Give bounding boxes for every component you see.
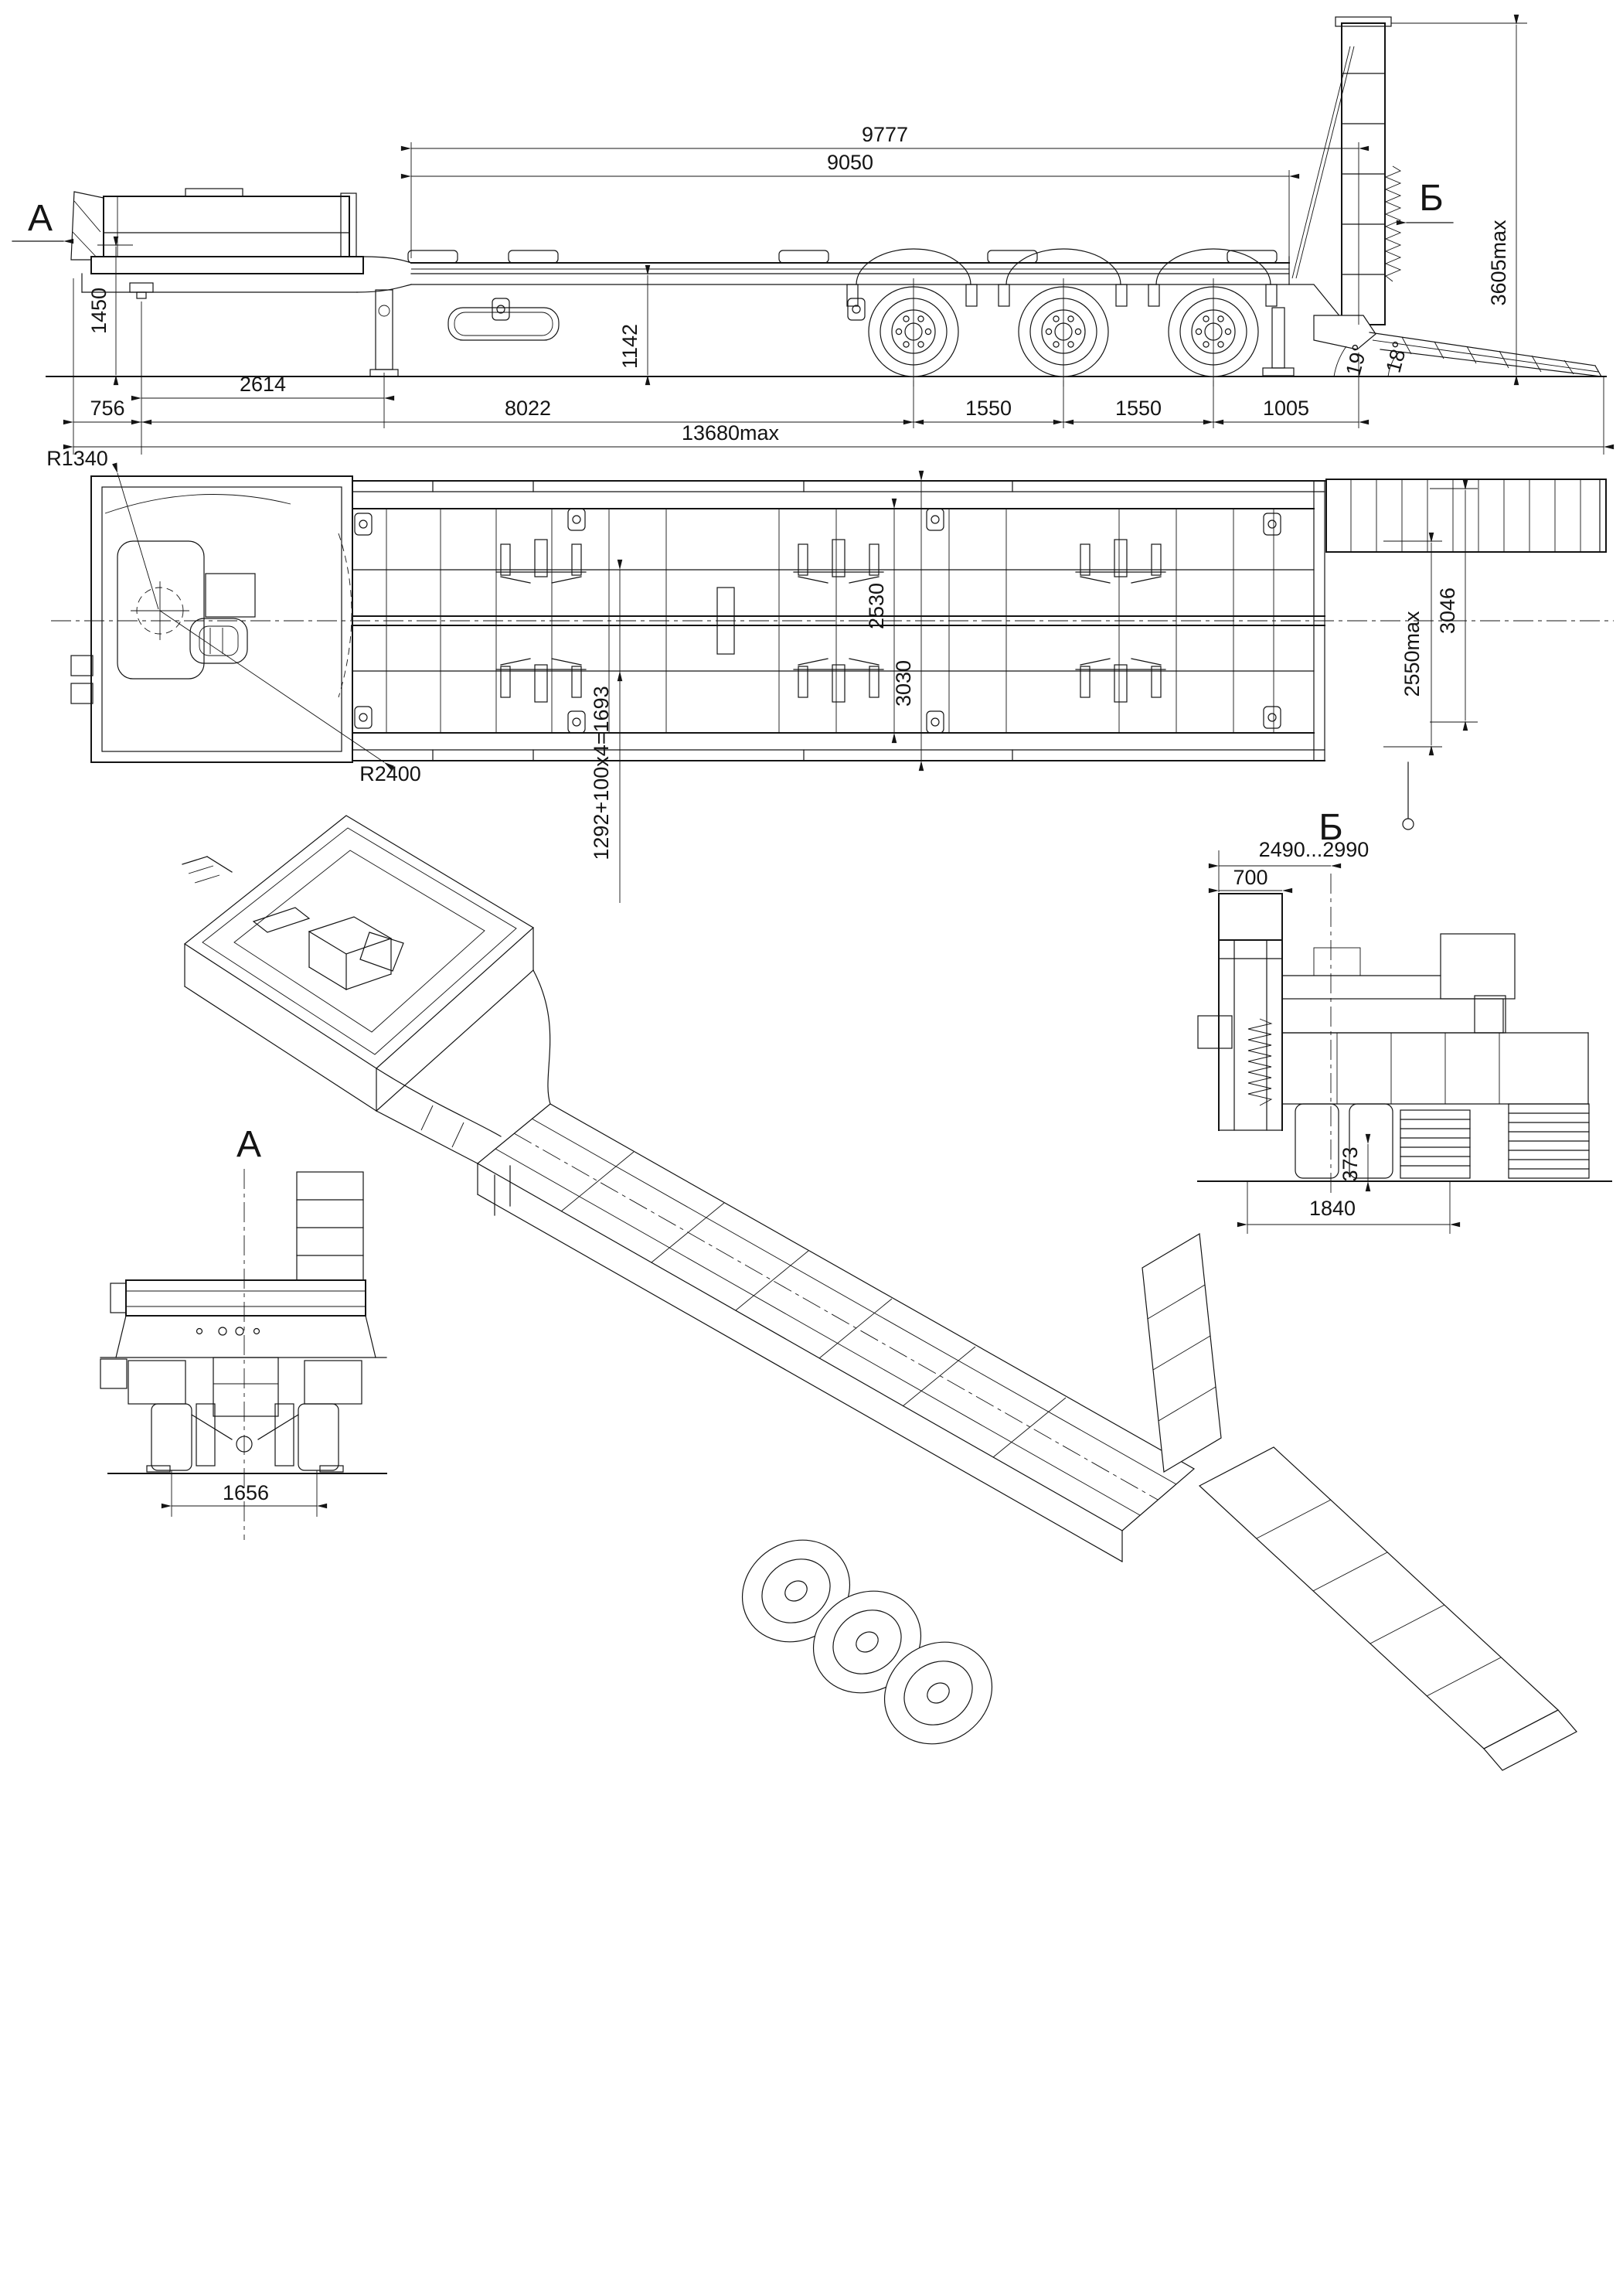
dim-1005: 1005 bbox=[1263, 397, 1309, 420]
section-a-view: А 1656 bbox=[100, 1124, 386, 1540]
dim-r1340: R1340 bbox=[46, 447, 108, 470]
dim-9777: 9777 bbox=[862, 123, 908, 146]
dim-9050: 9050 bbox=[827, 151, 873, 174]
dim-1292-100x4-1693: 1292+100x4=1693 bbox=[590, 686, 613, 860]
dim-8022: 8022 bbox=[505, 397, 551, 420]
dim-3605max: 3605max bbox=[1487, 220, 1510, 306]
dim-1450: 1450 bbox=[87, 288, 111, 334]
dim-13680max: 13680max bbox=[682, 421, 780, 445]
dim-2550max: 2550max bbox=[1400, 611, 1424, 697]
plan-view: R1340 R2400 2530 3030 1292+100x4=1693 25… bbox=[46, 447, 1614, 903]
dim-2490-2990: 2490...2990 bbox=[1259, 838, 1370, 861]
dim-1550-a: 1550 bbox=[965, 397, 1012, 420]
dim-1840: 1840 bbox=[1309, 1197, 1356, 1220]
side-view: А bbox=[12, 17, 1606, 455]
isometric-view bbox=[182, 816, 1577, 1770]
dim-3046: 3046 bbox=[1436, 588, 1459, 634]
section-arrow-a-label: А bbox=[28, 198, 53, 239]
section-a-title: А bbox=[236, 1124, 261, 1165]
dim-3030: 3030 bbox=[892, 660, 915, 707]
dim-700: 700 bbox=[1233, 866, 1267, 889]
dim-1142: 1142 bbox=[618, 324, 641, 369]
section-b-view: Б 2490...2990 700 bbox=[1198, 807, 1611, 1234]
dim-2530: 2530 bbox=[865, 583, 888, 629]
dim-r2400: R2400 bbox=[359, 762, 421, 785]
dim-1656: 1656 bbox=[223, 1481, 269, 1504]
dim-angle-ramp: 18° bbox=[1382, 339, 1413, 375]
dim-756: 756 bbox=[90, 397, 124, 420]
section-arrow-b-label: Б bbox=[1419, 178, 1444, 219]
dim-373: 373 bbox=[1339, 1146, 1362, 1181]
dim-2614: 2614 bbox=[240, 373, 286, 396]
lowbed-trailer-drawing: А bbox=[0, 0, 1623, 2296]
dim-1550-b: 1550 bbox=[1115, 397, 1162, 420]
